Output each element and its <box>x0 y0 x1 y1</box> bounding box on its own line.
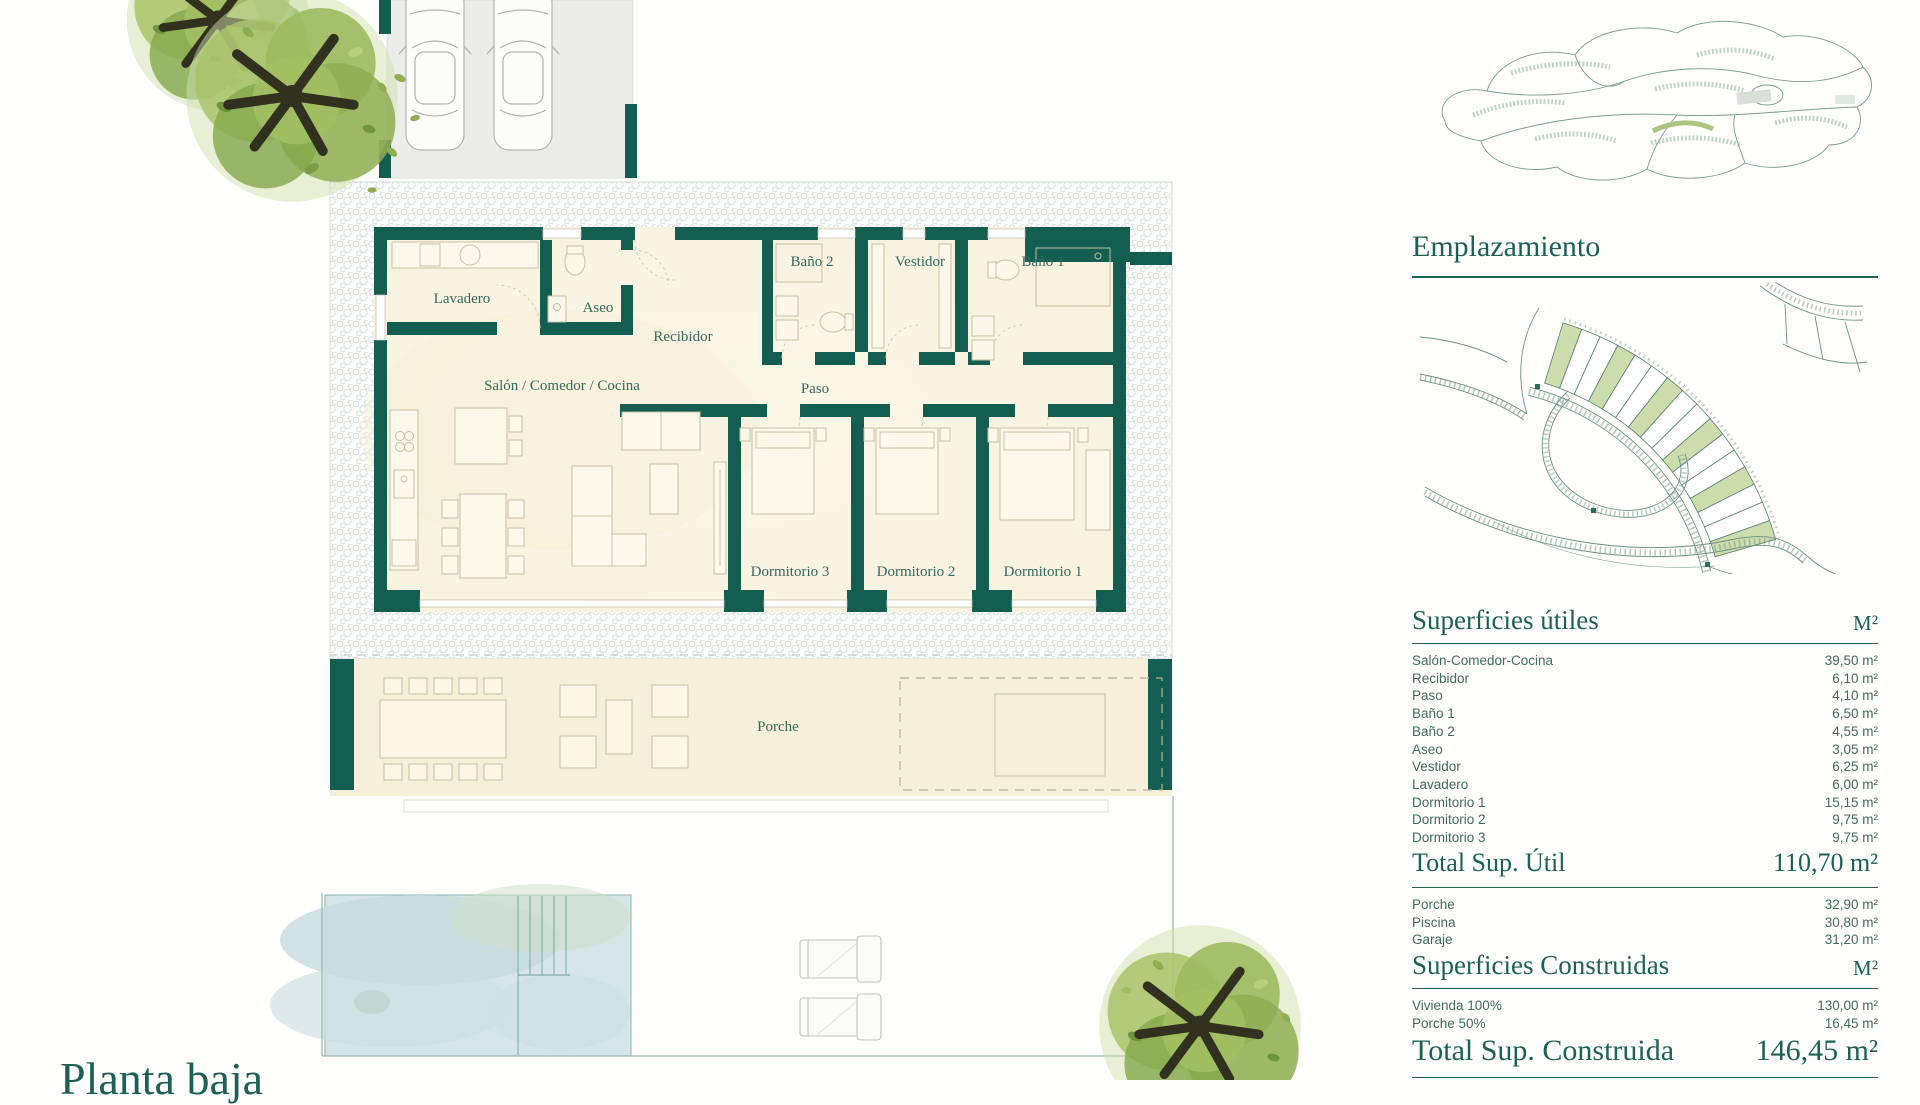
construidas-unit: M² <box>1853 956 1878 981</box>
surface-row: Porche 50%16,45 m² <box>1412 1015 1878 1033</box>
car-outline <box>399 0 471 150</box>
surface-row: Porche32,90 m² <box>1412 896 1878 914</box>
plan-caption: Planta baja <box>60 1052 263 1105</box>
masterplan-map <box>1415 3 1885 220</box>
room-label-dorm3: Dormitorio 3 <box>751 564 830 580</box>
porch <box>330 659 1172 812</box>
construidas-header: Superficies Construidas M² <box>1412 950 1878 989</box>
tree <box>1099 925 1301 1080</box>
surface-row: Paso4,10 m² <box>1412 687 1878 705</box>
room-label-porche: Porche <box>757 719 799 735</box>
sun-lounger <box>800 994 881 1040</box>
room-label-bano1: Baño 1 <box>1022 254 1065 270</box>
floorplan-page: { "plan": { "caption": "Planta baja", "r… <box>0 0 1920 1080</box>
surface-row: Baño 16,50 m² <box>1412 705 1878 723</box>
utiles-header: Superficies útiles M² <box>1412 605 1878 644</box>
surface-row: Vivienda 100%130,00 m² <box>1412 997 1878 1015</box>
surface-row: Baño 24,55 m² <box>1412 723 1878 741</box>
sun-lounger <box>800 936 881 982</box>
surface-row: Aseo3,05 m² <box>1412 741 1878 759</box>
utiles-unit: M² <box>1853 611 1878 636</box>
emplazamiento-title: Emplazamiento <box>1412 230 1878 278</box>
utiles-title: Superficies útiles <box>1412 605 1599 636</box>
superficies-utiles-table: Superficies útiles M² Salón-Comedor-Coci… <box>1412 605 1878 847</box>
superficies-construidas-table: Superficies Construidas M² Vivienda 100%… <box>1412 950 1878 1032</box>
room-label-lavadero: Lavadero <box>434 291 491 307</box>
construidas-title: Superficies Construidas <box>1412 950 1669 981</box>
floorplan-drawing: Lavadero Aseo Recibidor Baño 2 Vestidor … <box>0 0 1420 1080</box>
room-label-dorm1: Dormitorio 1 <box>1004 564 1083 580</box>
room-label-bano2: Baño 2 <box>791 254 834 270</box>
room-label-recibidor: Recibidor <box>653 329 712 345</box>
construidas-rows: Vivienda 100%130,00 m² Porche 50%16,45 m… <box>1412 989 1878 1032</box>
surface-row: Salón-Comedor-Cocina39,50 m² <box>1412 652 1878 670</box>
surface-row: Garaje31,20 m² <box>1412 931 1878 949</box>
pool <box>270 884 631 1056</box>
surface-row: Dormitorio 115,15 m² <box>1412 794 1878 812</box>
tree <box>186 0 397 202</box>
car-outline <box>487 0 559 150</box>
total-sup-construida: Total Sup. Construida 146,45 m² <box>1412 1034 1878 1078</box>
total-sup-util: Total Sup. Útil 110,70 m² <box>1412 848 1878 888</box>
room-label-salon: Salón / Comedor / Cocina <box>484 378 640 394</box>
surface-row: Piscina30,80 m² <box>1412 914 1878 932</box>
surface-row: Lavadero6,00 m² <box>1412 776 1878 794</box>
room-label-aseo: Aseo <box>583 300 614 316</box>
utiles-rows: Salón-Comedor-Cocina39,50 m² Recibidor6,… <box>1412 644 1878 847</box>
emplazamiento-section: Emplazamiento <box>1412 230 1878 278</box>
room-label-vestidor: Vestidor <box>895 254 945 270</box>
surface-row: Recibidor6,10 m² <box>1412 670 1878 688</box>
surface-row: Dormitorio 29,75 m² <box>1412 811 1878 829</box>
room-label-paso: Paso <box>801 381 829 397</box>
surface-row: Dormitorio 39,75 m² <box>1412 829 1878 847</box>
extras-rows: Porche32,90 m² Piscina30,80 m² Garaje31,… <box>1412 896 1878 949</box>
emplazamiento-map <box>1415 282 1885 579</box>
room-label-dorm2: Dormitorio 2 <box>877 564 956 580</box>
surface-row: Vestidor6,25 m² <box>1412 758 1878 776</box>
garage <box>379 0 637 178</box>
